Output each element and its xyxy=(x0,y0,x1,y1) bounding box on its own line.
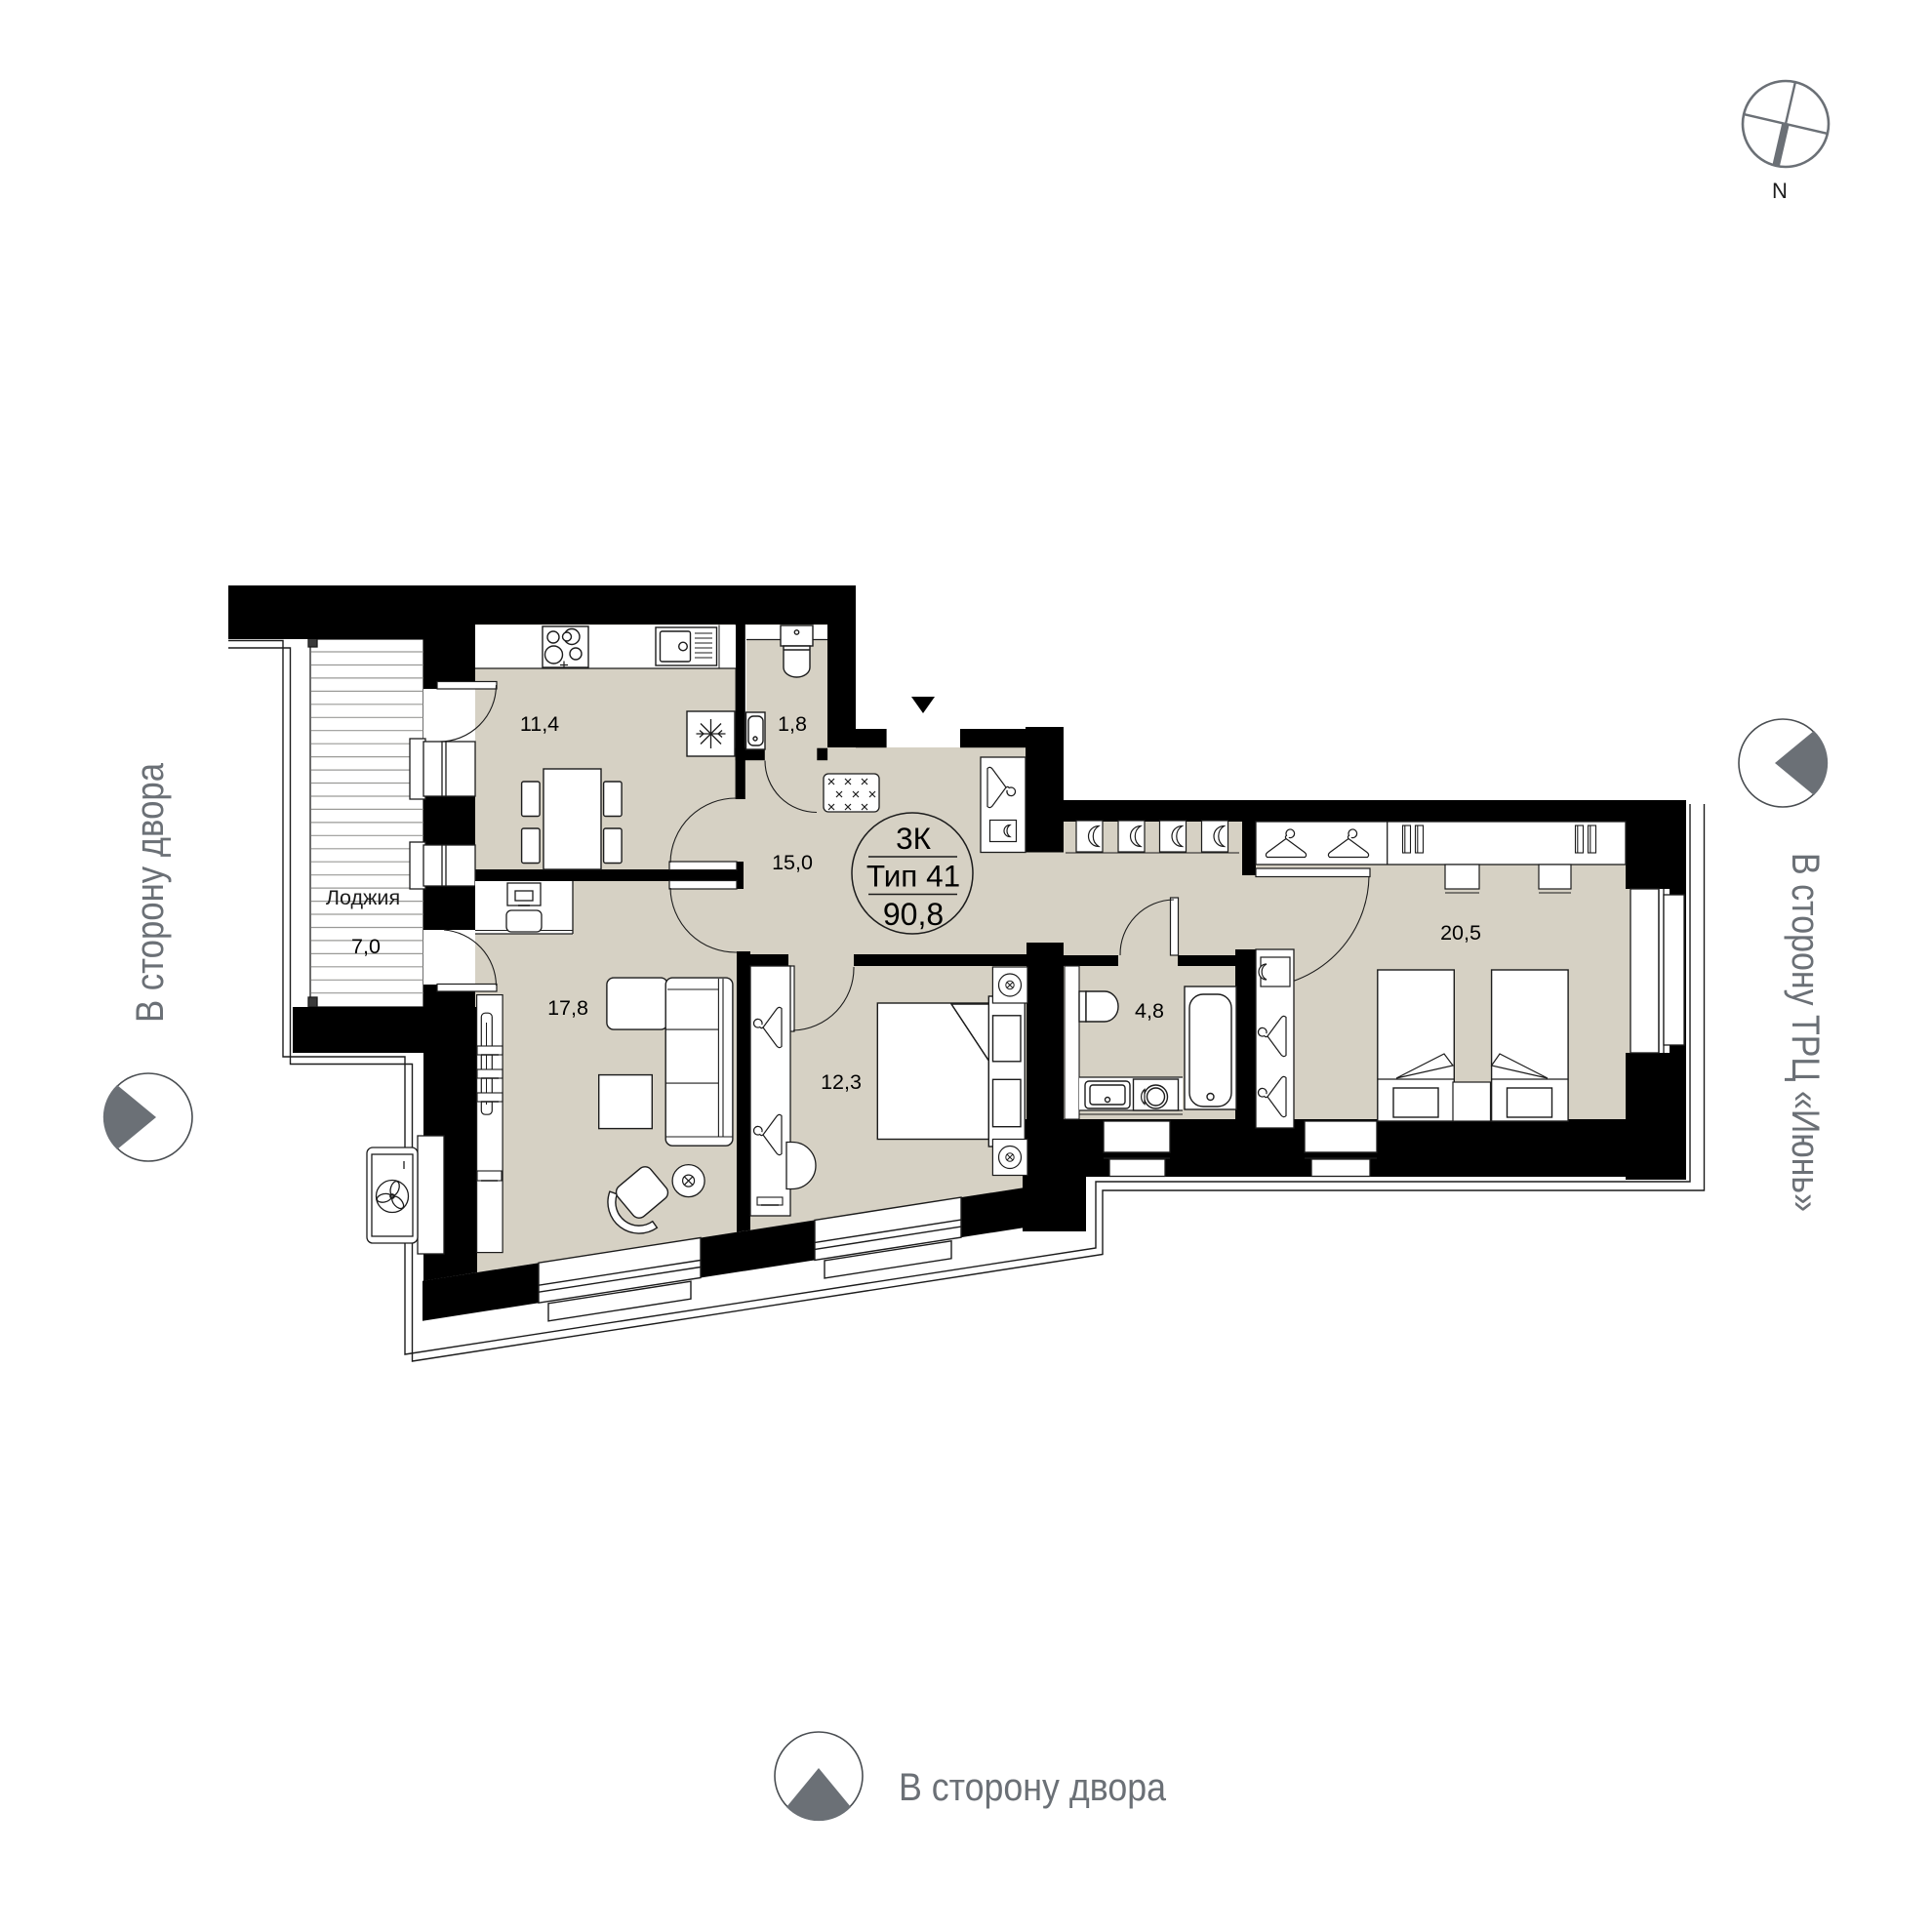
svg-text:12,3: 12,3 xyxy=(821,1070,862,1094)
svg-text:11,4: 11,4 xyxy=(520,712,559,736)
svg-text:4,8: 4,8 xyxy=(1135,999,1164,1023)
svg-text:Лоджия: Лоджия xyxy=(326,886,400,909)
svg-text:15,0: 15,0 xyxy=(772,851,813,874)
svg-text:20,5: 20,5 xyxy=(1440,921,1481,945)
svg-text:N: N xyxy=(1772,179,1788,203)
svg-text:1,8: 1,8 xyxy=(778,712,807,736)
svg-text:17,8: 17,8 xyxy=(547,996,588,1020)
svg-text:90,8: 90,8 xyxy=(883,897,944,932)
svg-text:7,0: 7,0 xyxy=(351,935,381,958)
svg-text:В сторону ТРЦ «Июнь»: В сторону ТРЦ «Июнь» xyxy=(1784,853,1827,1212)
svg-text:В сторону двора: В сторону двора xyxy=(129,762,172,1023)
svg-text:В сторону двора: В сторону двора xyxy=(899,1766,1167,1809)
svg-text:Тип 41: Тип 41 xyxy=(866,859,960,894)
svg-text:3К: 3К xyxy=(896,821,932,856)
